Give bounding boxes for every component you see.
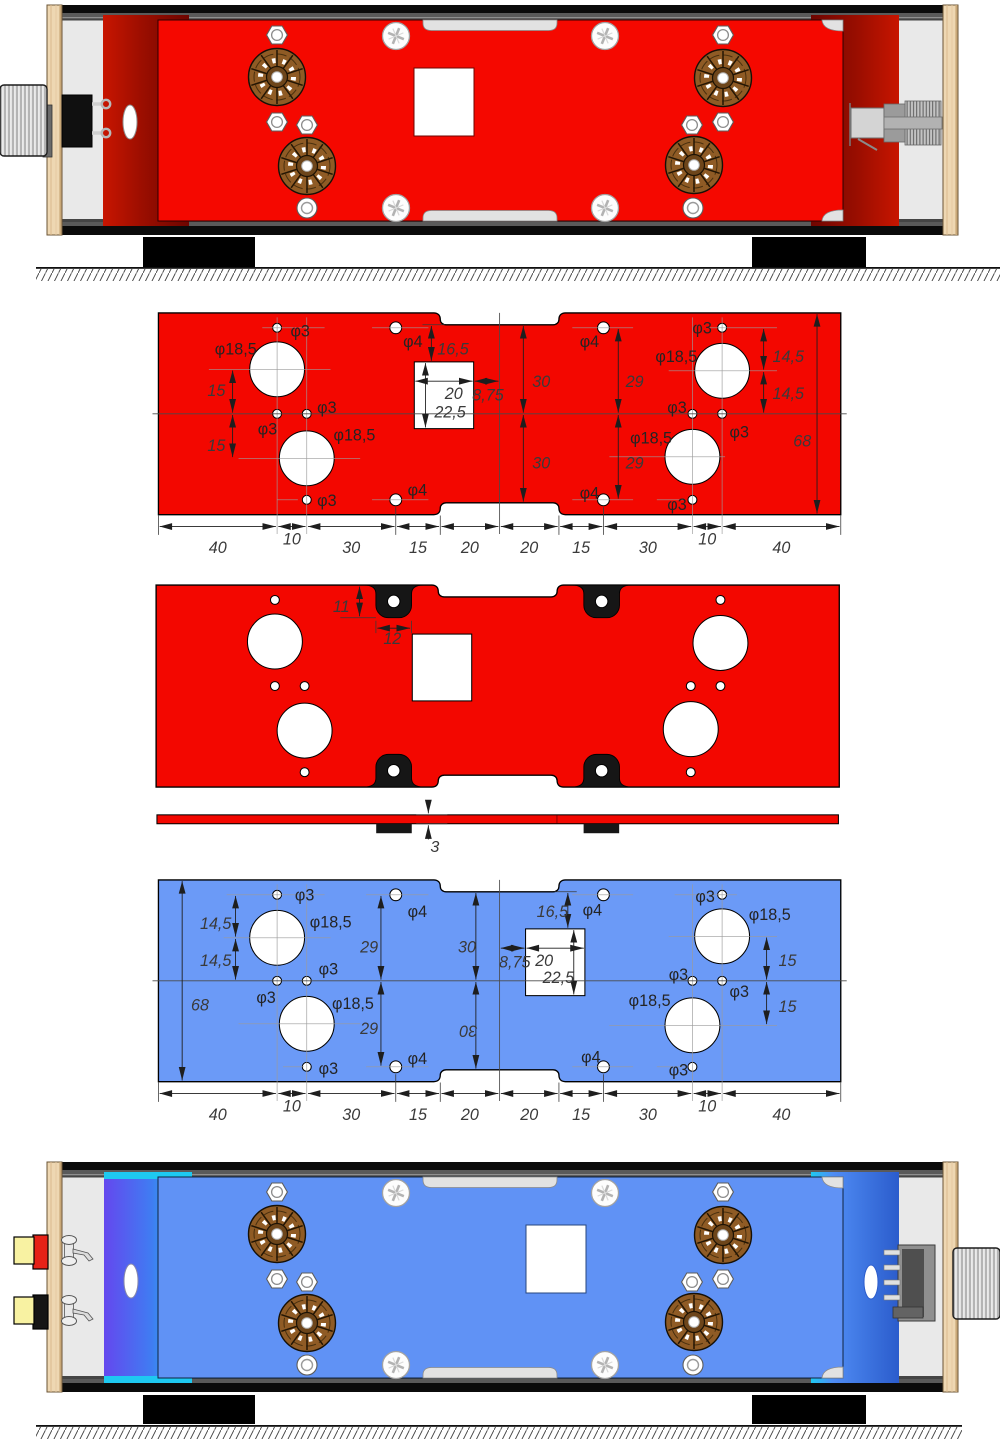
hex-nut xyxy=(267,1183,288,1201)
dim-label: φ3 xyxy=(319,960,338,978)
dim-label: φ3 xyxy=(730,424,749,442)
screw xyxy=(383,195,410,222)
dim-label: 8,75 xyxy=(472,386,504,404)
dim-label: φ3 xyxy=(290,323,309,341)
dim-label: 30 xyxy=(342,1106,360,1124)
transformer-cutout xyxy=(414,68,474,136)
dim-label: 16,5 xyxy=(437,340,469,358)
dim-label: 40 xyxy=(209,1106,227,1124)
dim-label: 68 xyxy=(191,996,209,1014)
dim-label: φ18,5 xyxy=(749,906,791,924)
dim-label: 12 xyxy=(383,630,401,648)
foot-left xyxy=(143,1395,255,1424)
screw xyxy=(592,195,619,222)
hex-nut xyxy=(682,1273,703,1291)
dim-label: 22,5 xyxy=(433,404,466,422)
dim-label: 30 xyxy=(532,455,550,473)
rca-jack-red xyxy=(14,1235,48,1269)
dim-label: 8,75 xyxy=(499,953,531,971)
panel-hole xyxy=(124,1264,138,1298)
rca-jack-black xyxy=(14,1295,48,1329)
ground-line xyxy=(36,1425,962,1427)
ground-line xyxy=(36,267,1000,269)
dim-label: 15 xyxy=(207,382,226,400)
dim-label: 15 xyxy=(409,1106,428,1124)
dim-label: 11 xyxy=(333,598,350,616)
dim-label: 22,5 xyxy=(542,969,575,987)
dim-label: φ3 xyxy=(695,888,714,906)
blue-plate-dimension-drawing: 14,514,568φ3φ18,5φ3φ3φ18,5φ32929φ4φ43030… xyxy=(146,874,871,1141)
red-plate-drilled-drawing: 1112 xyxy=(146,579,847,805)
square-cutout xyxy=(412,634,471,701)
dim-label: 30 xyxy=(639,1106,657,1124)
ring-nut xyxy=(683,1355,703,1375)
dim-label: 30 xyxy=(342,539,360,557)
dim-label: 20 xyxy=(534,952,553,970)
wood-side-left xyxy=(47,1162,62,1392)
tube-socket xyxy=(249,1206,306,1263)
dim-label: φ3 xyxy=(319,1060,338,1078)
ring-nut xyxy=(297,1355,317,1375)
screw xyxy=(592,1180,619,1207)
dim-label: φ4 xyxy=(580,333,599,351)
dim-label: 15 xyxy=(572,1106,591,1124)
rear-knob xyxy=(953,1248,1000,1319)
dim-label: 30 xyxy=(459,1021,477,1039)
plate-notch-bottom xyxy=(423,211,557,222)
dim-label: φ4 xyxy=(583,902,602,920)
screw xyxy=(592,1352,619,1379)
dim-label: φ18,5 xyxy=(215,340,257,358)
side-view-annotations: 3 xyxy=(430,838,439,856)
volume-knob xyxy=(0,85,47,156)
screw xyxy=(592,23,619,50)
dim-label: φ18,5 xyxy=(332,995,374,1013)
foot-left xyxy=(143,237,255,267)
red-plate-dimension-drawing: φ3φ18,51515φ3φ3φ18,5φ3φ4φ416,5208,7522,5… xyxy=(146,307,871,574)
hex-nut xyxy=(713,113,734,131)
dim-label: φ3 xyxy=(667,496,686,514)
dim-label: φ18,5 xyxy=(630,429,672,447)
screw xyxy=(383,23,410,50)
dim-label: 30 xyxy=(532,373,550,391)
dim-label: φ3 xyxy=(256,989,275,1007)
dim-label: φ18,5 xyxy=(629,992,671,1010)
tube-socket xyxy=(666,1294,723,1351)
foot-right xyxy=(752,237,866,267)
hex-nut xyxy=(267,113,288,131)
chassis-top-edge xyxy=(58,5,945,13)
dim-label: φ3 xyxy=(692,320,711,338)
wood-side-right xyxy=(943,5,958,235)
dim-label: 68 xyxy=(793,432,811,450)
dim-label: 20 xyxy=(519,539,538,557)
dim-label: 10 xyxy=(698,1097,716,1115)
dim-label: 15 xyxy=(572,539,591,557)
chassis-rendering-red xyxy=(0,0,1000,290)
dim-label: 29 xyxy=(359,939,378,957)
dim-label: 15 xyxy=(207,437,226,455)
chassis-bottom-edge xyxy=(58,226,945,235)
dim-label: φ3 xyxy=(669,966,688,984)
dim-label: 16,5 xyxy=(537,903,569,921)
tab-edge xyxy=(584,824,620,833)
dim-label: φ4 xyxy=(403,333,422,351)
tube-socket xyxy=(279,1295,336,1352)
ground-hatch xyxy=(36,269,1000,281)
plate-notch-bottom xyxy=(423,1368,557,1379)
plate-side-view: 3 xyxy=(146,795,847,875)
dim-label: 14,5 xyxy=(773,348,805,366)
dim-label: φ18,5 xyxy=(310,913,352,931)
hex-nut xyxy=(297,116,318,134)
tube-socket xyxy=(279,138,336,195)
dim-label: 15 xyxy=(409,539,428,557)
hex-nut xyxy=(713,1183,734,1201)
ring-nut xyxy=(297,198,317,218)
screw xyxy=(383,1352,410,1379)
dim-label: φ3 xyxy=(258,421,277,439)
dim-label: 40 xyxy=(772,539,790,557)
chassis-rendering-blue xyxy=(0,1157,1000,1439)
tube-socket xyxy=(249,49,306,106)
hex-nut xyxy=(267,1270,288,1288)
plate-edge xyxy=(157,815,838,824)
ring-nut xyxy=(683,198,703,218)
chassis-bottom-edge xyxy=(58,1383,945,1392)
dim-label: 14,5 xyxy=(200,952,232,970)
dim-label: φ3 xyxy=(317,399,336,417)
dim-label: φ4 xyxy=(408,481,427,499)
dim-label: 10 xyxy=(283,530,301,548)
dim-label: 15 xyxy=(778,998,797,1016)
hex-nut xyxy=(267,26,288,44)
dim-label: φ3 xyxy=(667,399,686,417)
dim-label: φ4 xyxy=(408,903,427,921)
dim-label: 20 xyxy=(519,1106,538,1124)
plate-notch-top xyxy=(423,20,557,31)
dim-label: 10 xyxy=(698,530,716,548)
dim-label: 20 xyxy=(444,385,463,403)
dim-label: φ3 xyxy=(730,983,749,1001)
panel-hole xyxy=(864,1265,878,1299)
dim-label: 40 xyxy=(209,539,227,557)
tube-socket xyxy=(695,50,752,107)
dim-label: 14,5 xyxy=(200,915,232,933)
tube-socket xyxy=(695,1207,752,1264)
chassis-top-edge xyxy=(58,1162,945,1170)
plate-notch-top xyxy=(423,1177,557,1188)
dim-label: φ3 xyxy=(295,887,314,905)
dim-label: 10 xyxy=(283,1097,301,1115)
hex-nut xyxy=(713,1270,734,1288)
plate-outline xyxy=(156,585,839,787)
panel-hole xyxy=(123,105,137,139)
transformer-cutout xyxy=(526,1225,586,1293)
dim-label: φ4 xyxy=(581,1048,600,1066)
dim-label: 20 xyxy=(460,539,479,557)
dim-label: φ3 xyxy=(317,492,336,510)
hex-nut xyxy=(713,26,734,44)
dim-label: φ18,5 xyxy=(655,348,697,366)
dim-label: 40 xyxy=(772,1106,790,1124)
top-plate-red xyxy=(158,20,843,221)
ground-hatch xyxy=(36,1427,962,1439)
dim-label: 30 xyxy=(639,539,657,557)
dim-label: 29 xyxy=(359,1020,378,1038)
dim-label: 14,5 xyxy=(773,385,805,403)
dim-label: 30 xyxy=(458,939,476,957)
top-plate-blue xyxy=(158,1177,843,1378)
dim-label: 20 xyxy=(460,1106,479,1124)
screw xyxy=(383,1180,410,1207)
tube-socket xyxy=(666,137,723,194)
hex-nut xyxy=(297,1273,318,1291)
hex-nut xyxy=(682,116,703,134)
dim-label: 3 xyxy=(430,838,439,856)
foot-right xyxy=(752,1395,866,1424)
dim-label: 15 xyxy=(778,952,797,970)
dim-label: φ18,5 xyxy=(333,427,375,445)
tab-edge xyxy=(376,824,412,833)
dim-label: φ3 xyxy=(669,1062,688,1080)
dim-label: 29 xyxy=(625,455,644,473)
dim-label: φ4 xyxy=(580,484,599,502)
dim-label: φ4 xyxy=(408,1050,427,1068)
dim-label: 29 xyxy=(625,373,644,391)
